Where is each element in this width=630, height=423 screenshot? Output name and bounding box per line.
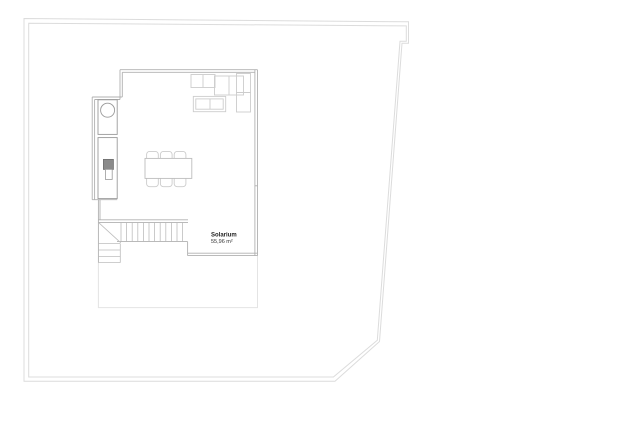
- floor-plan-drawing: Solarium 55,96 m²: [0, 0, 630, 423]
- dining-table: [145, 158, 192, 178]
- coffee-table: [193, 96, 225, 111]
- grill-icon: [103, 159, 113, 179]
- room-area-label: 55,96 m²: [211, 239, 233, 245]
- sofa-module: [191, 75, 215, 88]
- terrace-outline: [98, 256, 257, 308]
- plot-boundary: [24, 19, 409, 382]
- sink-icon: [101, 103, 115, 117]
- stair-break-line: [99, 223, 121, 243]
- kitchen-counter: [98, 100, 117, 199]
- staircase: [98, 222, 182, 262]
- dining-set: [145, 151, 192, 186]
- floor-plan-canvas: Solarium 55,96 m²: [0, 0, 630, 423]
- room-name-label: Solarium: [211, 232, 237, 238]
- sofa: [191, 74, 251, 113]
- room-label: Solarium 55,96 m²: [211, 232, 237, 245]
